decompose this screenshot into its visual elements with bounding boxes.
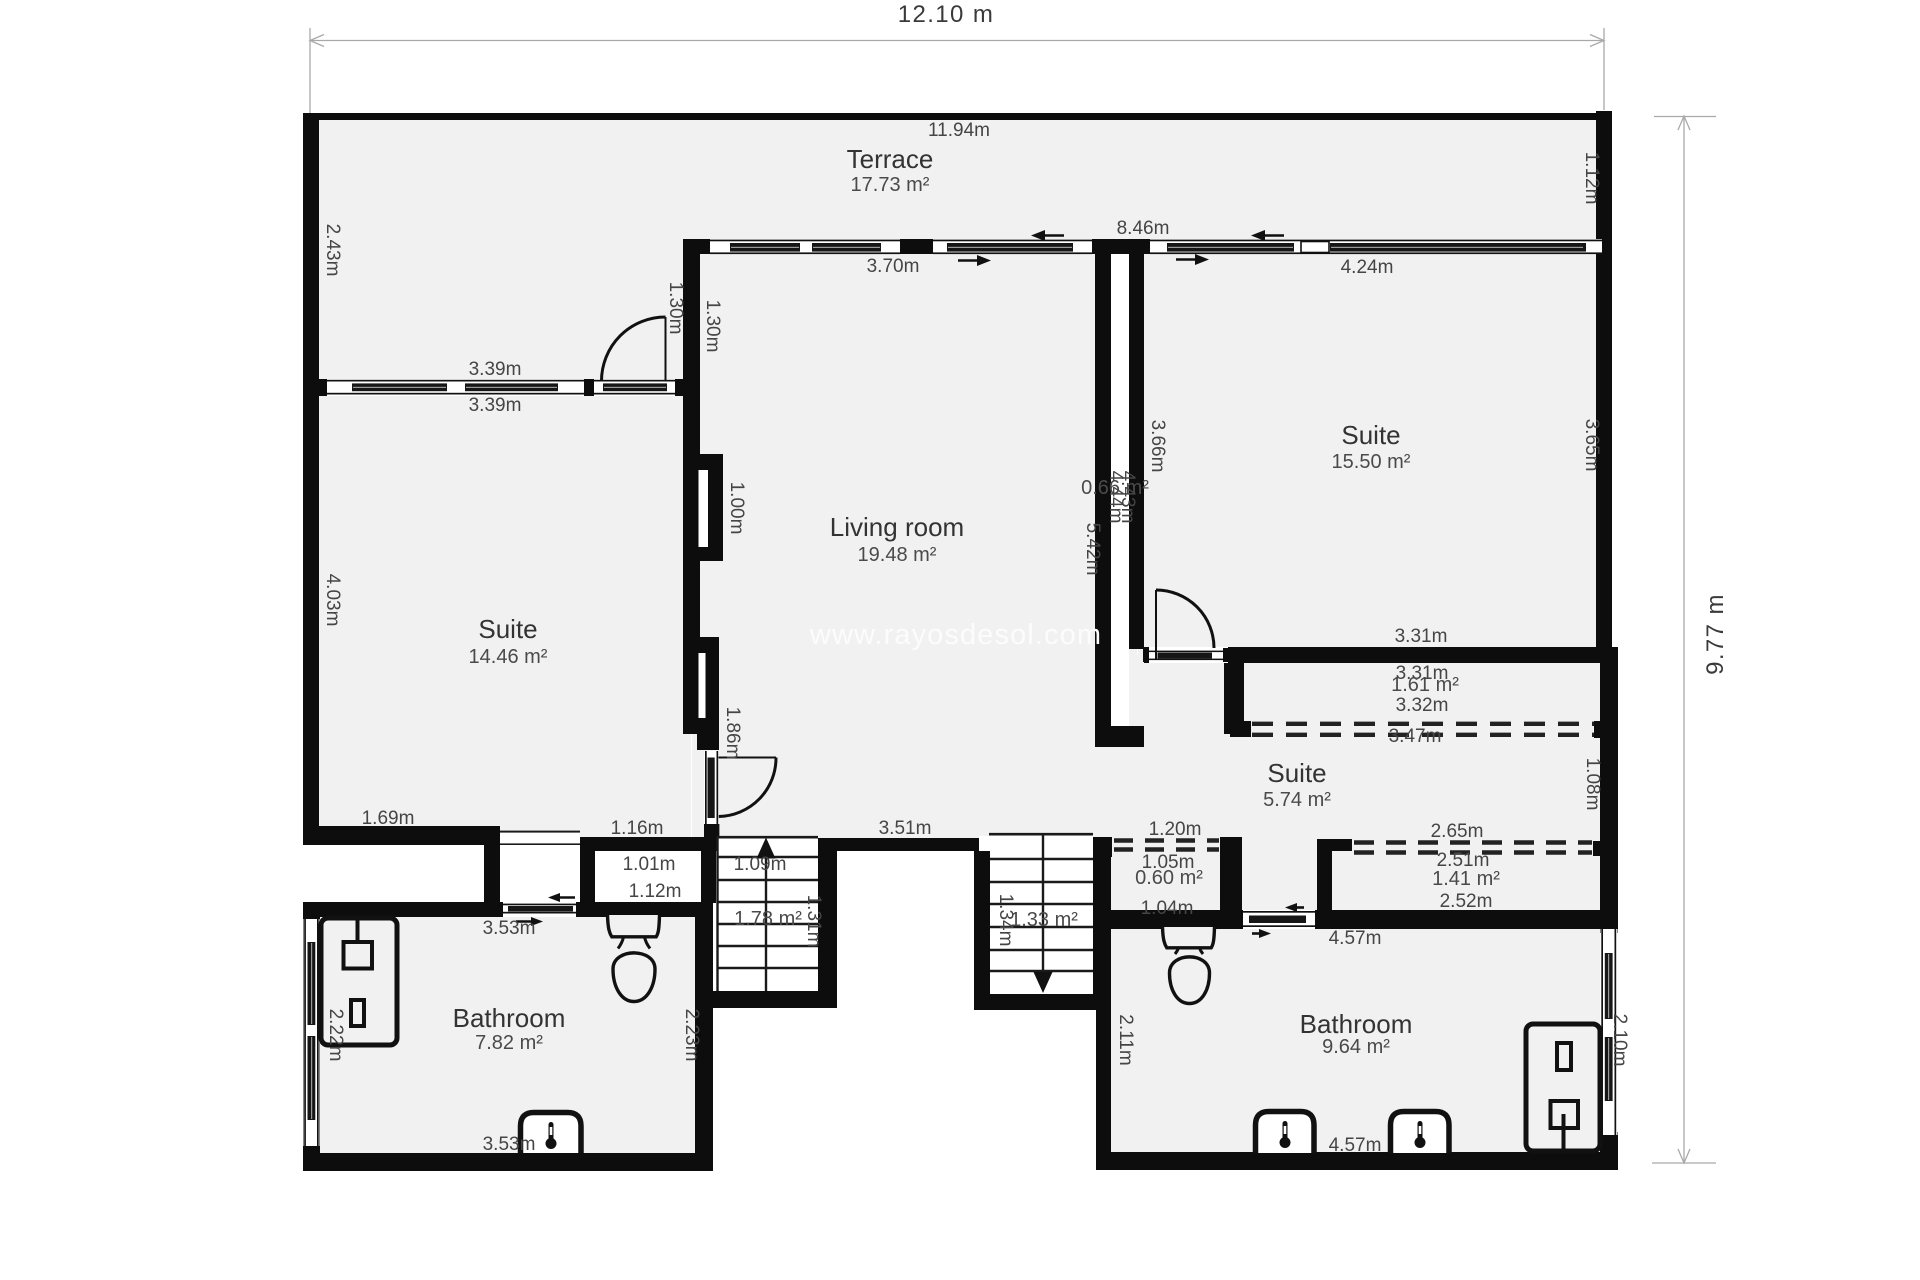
svg-text:1.69m: 1.69m (362, 808, 415, 829)
svg-text:1.00m: 1.00m (726, 482, 747, 535)
svg-text:3.32m: 3.32m (1396, 695, 1449, 716)
svg-text:2.22m: 2.22m (325, 1009, 346, 1062)
svg-text:2.52m: 2.52m (1440, 891, 1493, 912)
svg-text:8.46m: 8.46m (1117, 218, 1170, 239)
svg-text:Terrace: Terrace (847, 144, 934, 174)
svg-text:1.20m: 1.20m (1149, 819, 1202, 840)
svg-text:19.48 m²: 19.48 m² (858, 544, 937, 566)
svg-text:17.73 m²: 17.73 m² (851, 174, 930, 196)
svg-text:1.04m: 1.04m (1141, 898, 1194, 919)
svg-text:2.11m: 2.11m (1115, 1014, 1136, 1065)
svg-text:3.39m: 3.39m (469, 359, 522, 380)
svg-text:Living room: Living room (830, 512, 964, 542)
svg-text:4.03m: 4.03m (322, 574, 343, 627)
svg-text:2.23m: 2.23m (681, 1009, 702, 1062)
svg-text:3.70m: 3.70m (867, 256, 920, 277)
svg-text:3.66m: 3.66m (1147, 420, 1168, 473)
svg-text:0.60 m²: 0.60 m² (1135, 867, 1203, 889)
svg-text:3.65m: 3.65m (1581, 419, 1602, 472)
svg-text:1.86m: 1.86m (722, 707, 743, 760)
svg-text:9.77 m: 9.77 m (1702, 593, 1729, 675)
svg-text:2.10m: 2.10m (1609, 1014, 1630, 1067)
svg-text:Bathroom: Bathroom (1300, 1009, 1413, 1039)
svg-text:5.42m: 5.42m (1082, 523, 1103, 576)
svg-text:1.01m: 1.01m (623, 854, 676, 875)
svg-text:5.74 m²: 5.74 m² (1263, 789, 1331, 811)
svg-text:2.43m: 2.43m (322, 224, 343, 277)
svg-text:4.57m: 4.57m (1329, 928, 1382, 949)
svg-text:1.41 m²: 1.41 m² (1432, 868, 1500, 890)
svg-text:1.12m: 1.12m (1581, 152, 1602, 205)
svg-text:1.30m: 1.30m (702, 300, 723, 353)
svg-text:1.08m: 1.08m (1582, 758, 1603, 811)
svg-text:1.34m: 1.34m (995, 894, 1016, 947)
svg-text:2.65m: 2.65m (1431, 821, 1484, 842)
svg-text:1.30m: 1.30m (665, 282, 686, 335)
svg-text:15.50 m²: 15.50 m² (1332, 451, 1411, 473)
svg-text:11.94m: 11.94m (928, 120, 990, 141)
svg-text:12.10 m: 12.10 m (898, 1, 995, 28)
svg-text:1.31m: 1.31m (803, 895, 824, 948)
svg-text:4.24m: 4.24m (1341, 257, 1394, 278)
svg-text:Suite: Suite (1341, 420, 1400, 450)
svg-text:9.64 m²: 9.64 m² (1322, 1036, 1390, 1058)
svg-text:4.57m: 4.57m (1329, 1135, 1382, 1156)
svg-text:3.31m: 3.31m (1395, 626, 1448, 647)
svg-text:7.82 m²: 7.82 m² (475, 1032, 543, 1054)
svg-text:1.12m: 1.12m (629, 881, 682, 902)
svg-text:3.47m: 3.47m (1389, 726, 1442, 747)
svg-text:14.46 m²: 14.46 m² (469, 646, 548, 668)
svg-text:1.09m: 1.09m (734, 854, 787, 875)
svg-text:Suite: Suite (478, 614, 537, 644)
svg-text:3.51m: 3.51m (879, 818, 932, 839)
svg-text:Suite: Suite (1267, 758, 1326, 788)
svg-text:3.53m: 3.53m (483, 1134, 536, 1155)
svg-text:www.rayosdesol.com: www.rayosdesol.com (809, 619, 1102, 651)
svg-text:1.33 m²: 1.33 m² (1010, 909, 1078, 931)
svg-text:4.43m: 4.43m (1117, 471, 1138, 524)
svg-text:1.16m: 1.16m (611, 818, 664, 839)
svg-text:Bathroom: Bathroom (453, 1003, 566, 1033)
svg-text:3.39m: 3.39m (469, 395, 522, 416)
svg-text:1.78 m²: 1.78 m² (734, 908, 802, 930)
svg-text:1.61 m²: 1.61 m² (1391, 674, 1459, 696)
svg-text:3.53m: 3.53m (483, 918, 536, 939)
